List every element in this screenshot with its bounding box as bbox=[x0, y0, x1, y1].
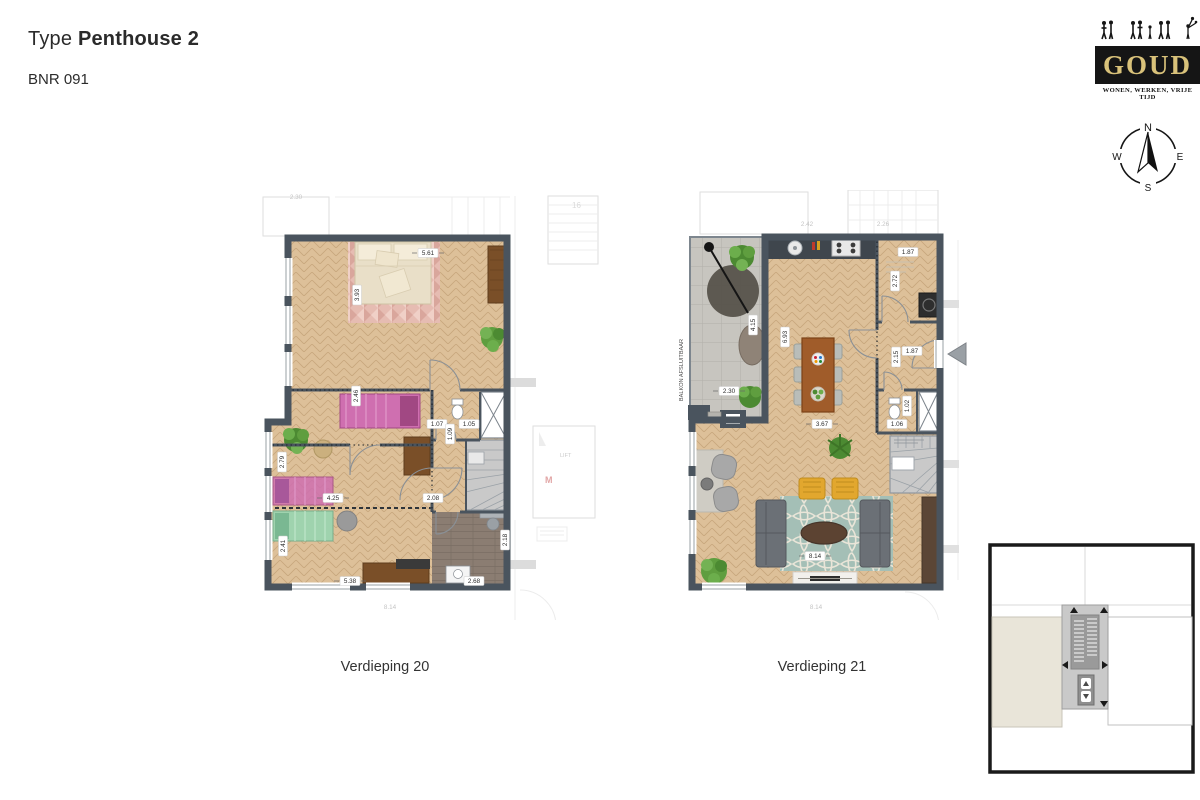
installation-shaft-20 bbox=[481, 392, 506, 438]
key-plan-unit-highlight bbox=[992, 617, 1062, 727]
dim-label-faint: 2.26 bbox=[877, 221, 890, 228]
dim-label: 2.08 bbox=[427, 495, 440, 502]
dim-label: 4.25 bbox=[327, 495, 340, 502]
entrance-arrow bbox=[948, 343, 966, 365]
cooktop bbox=[832, 240, 860, 256]
dim-label: 5.38 bbox=[344, 578, 357, 585]
caption-verdieping-21: Verdieping 21 bbox=[737, 659, 907, 675]
balcony-label: BALKON AFSLUITBAAR bbox=[679, 339, 685, 401]
key-plan-elevator-buttons bbox=[1078, 675, 1094, 705]
armchair-yellow-2 bbox=[832, 478, 858, 499]
key-plan bbox=[988, 543, 1200, 777]
dining-table bbox=[794, 338, 842, 412]
floorplan-verdieping-21: BALKON AFSLUITBAAR bbox=[660, 190, 980, 620]
tall-cabinet bbox=[922, 497, 938, 583]
dim-label-faint: 2.30 bbox=[290, 194, 303, 201]
pouf-gray bbox=[337, 511, 357, 531]
dim-label: 2.18 bbox=[502, 533, 509, 546]
logo-tagline: WONEN, WERKEN, VRIJE TIJD bbox=[1095, 87, 1200, 101]
dim-label: 1.87 bbox=[902, 249, 915, 256]
goud-logo: GOUD WONEN, WERKEN, VRIJE TIJD bbox=[1095, 14, 1200, 101]
dim-label-faint: 2.42 bbox=[801, 221, 814, 228]
dim-label: 3.93 bbox=[354, 288, 361, 301]
dim-label-faint: 8.14 bbox=[810, 604, 823, 611]
dim-label-faint: 8.14 bbox=[384, 604, 397, 611]
unit-number: BNR 091 bbox=[28, 71, 89, 88]
dim-label: 1.05 bbox=[463, 421, 476, 428]
coffee-table bbox=[801, 522, 847, 544]
stairs-20 bbox=[466, 440, 507, 510]
page-title: Type Penthouse 2 bbox=[28, 28, 199, 51]
dim-label: 5.61 bbox=[422, 250, 435, 257]
installation-shaft-21 bbox=[919, 392, 938, 431]
dim-label: 2.72 bbox=[892, 274, 899, 287]
floor-ref: 16 bbox=[572, 201, 581, 210]
dim-label: 8.14 bbox=[809, 553, 822, 560]
dim-label: 3.67 bbox=[816, 421, 829, 428]
key-plan-elevator bbox=[1071, 615, 1099, 669]
parasol bbox=[707, 265, 759, 317]
dim-label: 2.15 bbox=[893, 350, 900, 363]
dim-label: 2.30 bbox=[723, 388, 736, 395]
compass-needle-right bbox=[1148, 132, 1158, 172]
dim-label: 2.68 bbox=[468, 578, 481, 585]
sofa-left bbox=[756, 500, 786, 567]
dim-label: 2.79 bbox=[279, 455, 286, 468]
dresser-top-items bbox=[396, 559, 430, 569]
compass-e: E bbox=[1177, 152, 1184, 163]
side-table bbox=[701, 478, 713, 490]
title-type: Penthouse 2 bbox=[78, 28, 199, 50]
toilet-20 bbox=[452, 399, 463, 419]
floorplan-sheet: Type Penthouse 2 BNR 091 GOUD WONEN, WER… bbox=[0, 0, 1200, 800]
pouf-tan bbox=[314, 440, 332, 458]
compass-rose: N E S W bbox=[1107, 112, 1189, 200]
compass-w: W bbox=[1112, 152, 1122, 163]
dim-label: 1.07 bbox=[431, 421, 444, 428]
compass-s: S bbox=[1145, 183, 1152, 194]
key-plan-neighbor-block bbox=[1108, 617, 1192, 725]
dim-label: 1.02 bbox=[904, 399, 911, 412]
floorplan-verdieping-20: LIFT M 16 bbox=[255, 190, 600, 620]
dim-label: 1.09 bbox=[447, 427, 454, 440]
caption-verdieping-20: Verdieping 20 bbox=[300, 659, 470, 675]
logo-box: GOUD bbox=[1095, 46, 1200, 84]
stairs-21 bbox=[890, 436, 938, 493]
sofa-right bbox=[860, 500, 890, 567]
lift-label: LIFT bbox=[560, 453, 572, 459]
dim-label: 2.41 bbox=[280, 539, 287, 552]
washing-machine bbox=[919, 293, 939, 317]
table-centerpiece bbox=[812, 353, 824, 365]
dim-label: 6.93 bbox=[782, 330, 789, 343]
dim-label: 4.15 bbox=[750, 318, 757, 331]
people-silhouettes-icon bbox=[1095, 14, 1200, 40]
title-prefix: Type bbox=[28, 28, 72, 50]
m-marker: M bbox=[545, 475, 553, 485]
dim-label: 1.06 bbox=[891, 421, 904, 428]
hall-cabinet bbox=[404, 437, 430, 475]
master-wardrobe bbox=[488, 246, 506, 303]
dim-label: 1.87 bbox=[906, 348, 919, 355]
logo-wordmark: GOUD bbox=[1103, 50, 1192, 81]
armchair-yellow-1 bbox=[799, 478, 825, 499]
toilet-21 bbox=[889, 398, 900, 419]
dim-label: 2.46 bbox=[353, 389, 360, 402]
compass-needle-left bbox=[1138, 132, 1148, 172]
